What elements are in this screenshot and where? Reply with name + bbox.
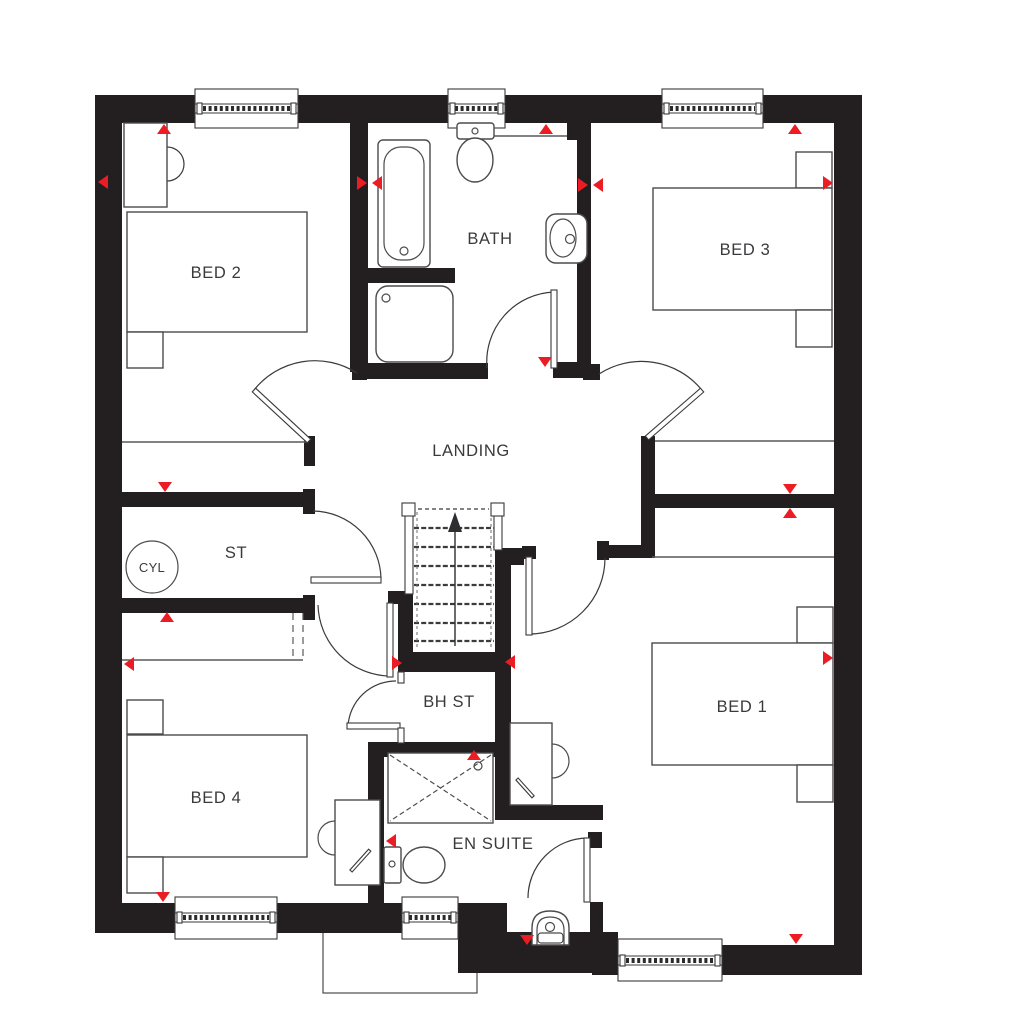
floor-plan: BED 2 BATH BED 3 LANDING ST CYL BED 4 BH… — [0, 0, 1024, 1024]
window-ensuite — [402, 897, 458, 939]
label-storage: ST — [225, 544, 247, 562]
stair-up-arrow-icon — [448, 512, 462, 646]
red-arrow-marker-icon — [539, 124, 553, 134]
door-bed4 — [318, 603, 393, 677]
wash-basin-ensuite — [532, 911, 569, 945]
label-bed1: BED 1 — [717, 698, 768, 716]
label-cylinder: CYL — [139, 560, 165, 575]
red-arrow-marker-icon — [593, 178, 603, 192]
bedside-table — [796, 310, 832, 347]
bedside-table — [797, 607, 833, 643]
desk-bed4 — [318, 800, 380, 885]
label-bulkhead-storage: BH ST — [423, 693, 475, 711]
window-bed3 — [662, 89, 763, 128]
door-bed2 — [252, 361, 357, 443]
red-arrow-marker-icon — [789, 934, 803, 944]
bedside-table — [127, 332, 163, 368]
red-arrow-marker-icon — [783, 508, 797, 518]
red-arrow-marker-icon — [156, 892, 170, 902]
stair-balustrade-left — [405, 506, 413, 594]
door-bed1 — [526, 557, 605, 635]
desk-bed1 — [510, 723, 569, 805]
label-bath: BATH — [467, 230, 512, 248]
wash-basin-bath — [546, 214, 587, 263]
red-arrow-marker-icon — [160, 612, 174, 622]
red-arrow-marker-icon — [788, 124, 802, 134]
bedside-table — [127, 857, 163, 893]
staircase — [402, 503, 504, 648]
window-bath — [448, 89, 505, 128]
wardrobe — [124, 123, 167, 207]
door-ensuite — [528, 838, 590, 902]
red-arrow-marker-icon — [372, 176, 382, 190]
toilet-bath — [457, 123, 494, 182]
bedside-table — [797, 765, 833, 802]
bathtub — [378, 140, 430, 267]
red-arrow-marker-icon — [538, 357, 552, 367]
window-bed4 — [175, 897, 277, 939]
red-arrow-marker-icon — [783, 484, 797, 494]
bedside-table — [127, 700, 163, 734]
window-bed1 — [618, 939, 722, 981]
door-bed3 — [599, 361, 704, 439]
newel-post — [402, 503, 415, 516]
desk-chair — [552, 744, 569, 778]
newel-post — [491, 503, 504, 516]
window-bed2 — [195, 89, 298, 128]
red-arrow-marker-icon — [124, 657, 134, 671]
label-landing: LANDING — [432, 442, 510, 460]
label-bed2: BED 2 — [191, 264, 242, 282]
door-bath — [487, 290, 557, 368]
door-bhst — [347, 672, 404, 743]
shower-tray-bath — [376, 286, 453, 362]
door-storage — [311, 511, 381, 583]
label-bed3: BED 3 — [720, 241, 771, 259]
label-bed4: BED 4 — [191, 789, 242, 807]
floor-plan-drawing: BED 2 BATH BED 3 LANDING ST CYL BED 4 BH… — [0, 0, 1024, 1024]
desk-chair — [318, 821, 335, 855]
shower-tray-ensuite — [388, 753, 493, 823]
red-arrow-marker-icon — [386, 834, 396, 848]
label-ensuite: EN SUITE — [453, 835, 534, 853]
toilet-ensuite — [384, 847, 445, 883]
red-arrow-marker-icon — [158, 482, 172, 492]
